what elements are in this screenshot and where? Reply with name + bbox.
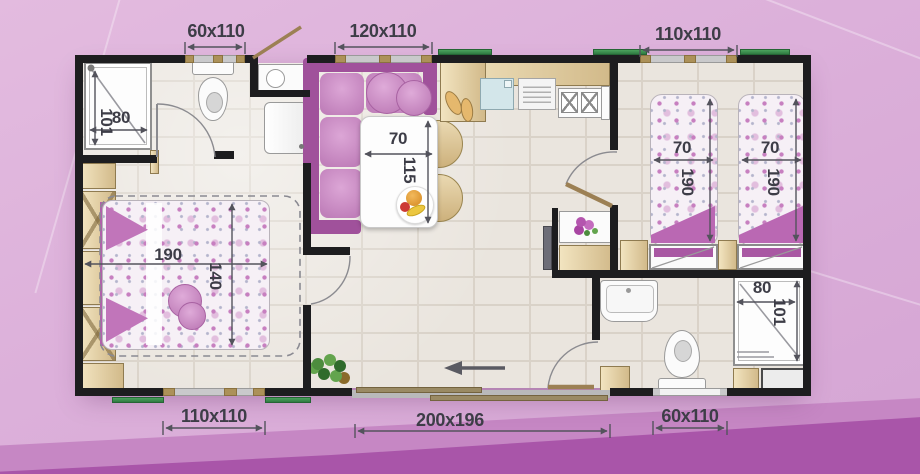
window-master-bedroom xyxy=(163,388,265,396)
washbasin-second-drain xyxy=(626,288,631,293)
twin-bed-left-frame-pad xyxy=(654,248,713,257)
sofa-cushion xyxy=(320,169,362,218)
dim-master-bed-length: 190 xyxy=(146,246,190,263)
dim-shower-main-width: 80 xyxy=(103,109,139,126)
wall-bedroom1-lower xyxy=(303,305,311,396)
window-wc-second-pane xyxy=(660,389,720,395)
wall-top xyxy=(307,55,335,63)
dim-master-bed-width: 140 xyxy=(207,254,223,298)
window-mullion xyxy=(335,55,346,63)
stove-panel xyxy=(601,86,610,120)
drainer-ribs xyxy=(523,83,551,105)
window-mullion xyxy=(236,55,245,63)
window-mullion xyxy=(421,55,432,63)
awning-marker xyxy=(438,49,492,55)
sliding-door-panel xyxy=(356,387,482,393)
sofa-arm-bottom xyxy=(303,220,361,234)
master-bed-sheet xyxy=(146,203,162,345)
dim-label-top-bedroom: 110x110 xyxy=(640,25,736,43)
toilet-second-bowl-inner xyxy=(674,340,692,362)
twin-nightstand xyxy=(718,240,737,270)
wall-bottom xyxy=(727,388,810,396)
fridge-handle xyxy=(299,144,304,149)
wall-bedroom1-upper xyxy=(303,163,311,252)
dim-table-width: 70 xyxy=(380,130,416,147)
tv xyxy=(543,226,552,270)
wall-bedroom2-bath2 xyxy=(552,270,811,278)
wall-bedroom1-stub xyxy=(303,247,350,255)
dim-twin-left-width: 70 xyxy=(664,139,700,156)
door-leaf-top-entry xyxy=(253,27,301,58)
window-mullion xyxy=(253,388,265,396)
wall-bath1-stub xyxy=(214,151,234,159)
sliding-door-panel xyxy=(430,395,608,401)
washbasin-entry-bowl xyxy=(266,69,285,88)
window-mullion xyxy=(185,55,194,63)
wall-bath1-bottom xyxy=(75,155,157,163)
wall-left xyxy=(75,55,83,396)
bed-cushion xyxy=(178,302,206,330)
dim-label-top-lounge: 120x110 xyxy=(335,22,431,40)
wall-niche-left xyxy=(552,208,558,274)
awning-marker xyxy=(593,49,647,55)
wall-bath2-left xyxy=(592,278,600,340)
dim-shower-second-depth: 101 xyxy=(771,290,787,334)
bedside-cabinet xyxy=(620,240,648,272)
sofa-round-pillow xyxy=(396,80,432,116)
stove-burner xyxy=(581,92,598,113)
sofa-cushion xyxy=(320,73,364,115)
dim-label-top-wc: 60x110 xyxy=(178,22,254,40)
wall-right xyxy=(803,55,811,396)
window-mullion xyxy=(163,388,175,396)
hall-cabinet-top xyxy=(559,211,613,243)
dim-twin-left-length: 190 xyxy=(679,160,695,204)
window-mullion xyxy=(213,55,223,63)
wall-bottom xyxy=(610,388,653,396)
wardrobe-unit xyxy=(80,163,116,189)
toilet-main-bowl-inner xyxy=(206,92,223,113)
window-mullion xyxy=(379,55,391,63)
window-mullion xyxy=(640,55,651,63)
window-mullion xyxy=(726,55,737,63)
sofa-cushion xyxy=(320,117,362,167)
wall-bath1-sink xyxy=(250,90,310,97)
wardrobe-unit xyxy=(80,363,124,391)
window-mullion xyxy=(224,388,237,396)
floor-plan: 60x110 120x110 110x110 110x110 200x196 6… xyxy=(0,0,920,474)
dim-twin-right-width: 70 xyxy=(752,139,788,156)
dim-twin-right-length: 190 xyxy=(765,160,781,204)
wall-bottom xyxy=(75,388,163,396)
flower xyxy=(576,217,586,227)
awning-marker xyxy=(112,397,164,403)
awning-marker xyxy=(265,397,311,403)
awning-marker xyxy=(740,49,790,55)
dim-label-bottom-bedroom: 110x110 xyxy=(166,407,262,425)
wall-top xyxy=(75,55,185,63)
dim-table-length: 115 xyxy=(401,148,417,192)
twin-bed-right-frame-pad xyxy=(742,248,801,257)
wall-kitchen-bedroom2-upper xyxy=(610,55,618,150)
dim-label-bottom-patio: 200x196 xyxy=(398,411,502,429)
wall-kitchen-bedroom2-lower xyxy=(610,205,618,273)
wall-top xyxy=(432,55,640,63)
shower-main xyxy=(84,62,152,150)
kitchen-sink-corner xyxy=(504,80,512,88)
wall-top xyxy=(737,55,810,63)
hall-cabinet-base xyxy=(559,245,613,273)
dim-label-bottom-wc: 60x110 xyxy=(652,407,728,425)
stove-burner xyxy=(561,92,578,113)
plant xyxy=(312,358,324,370)
window-mullion xyxy=(684,55,696,63)
